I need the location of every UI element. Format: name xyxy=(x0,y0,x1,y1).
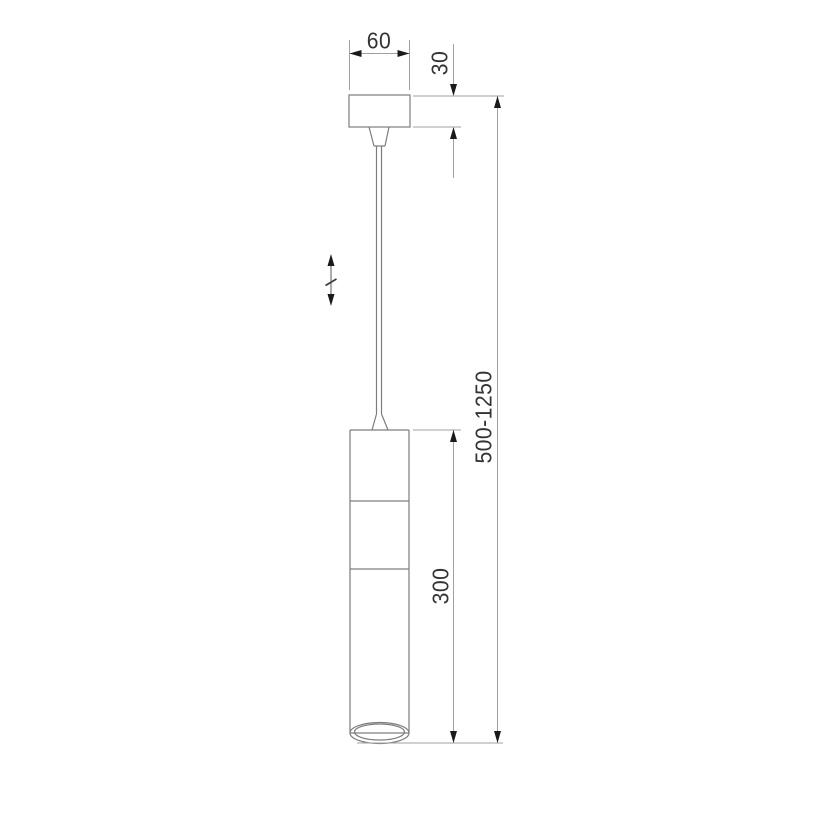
strain-relief-outline xyxy=(369,127,389,146)
canopy-width-label: 60 xyxy=(367,30,391,53)
overall-height-label: 500-1250 xyxy=(473,370,496,463)
arrow-up-icon xyxy=(494,96,501,108)
lamp-bottom-rim xyxy=(350,723,409,744)
body-height-label: 300 xyxy=(430,568,453,605)
arrow-down-icon xyxy=(450,731,457,743)
arrow-down-icon xyxy=(450,84,457,96)
canopy-outline xyxy=(349,95,410,127)
canopy-height-label: 30 xyxy=(429,51,452,75)
arrow-right-icon xyxy=(398,50,410,57)
arrow-up-icon xyxy=(450,430,457,442)
arrow-up-icon xyxy=(450,127,457,139)
arrow-left-icon xyxy=(350,50,362,57)
arrow-down-icon xyxy=(494,731,501,743)
lamp-body-outline xyxy=(350,430,409,733)
adjustable-height-icon xyxy=(326,254,337,306)
suspension-cable xyxy=(377,146,382,414)
drawing-linework xyxy=(0,0,825,825)
technical-drawing-canvas: 60 30 300 500-1250 xyxy=(0,0,825,825)
cone-connector-outline xyxy=(372,414,388,430)
